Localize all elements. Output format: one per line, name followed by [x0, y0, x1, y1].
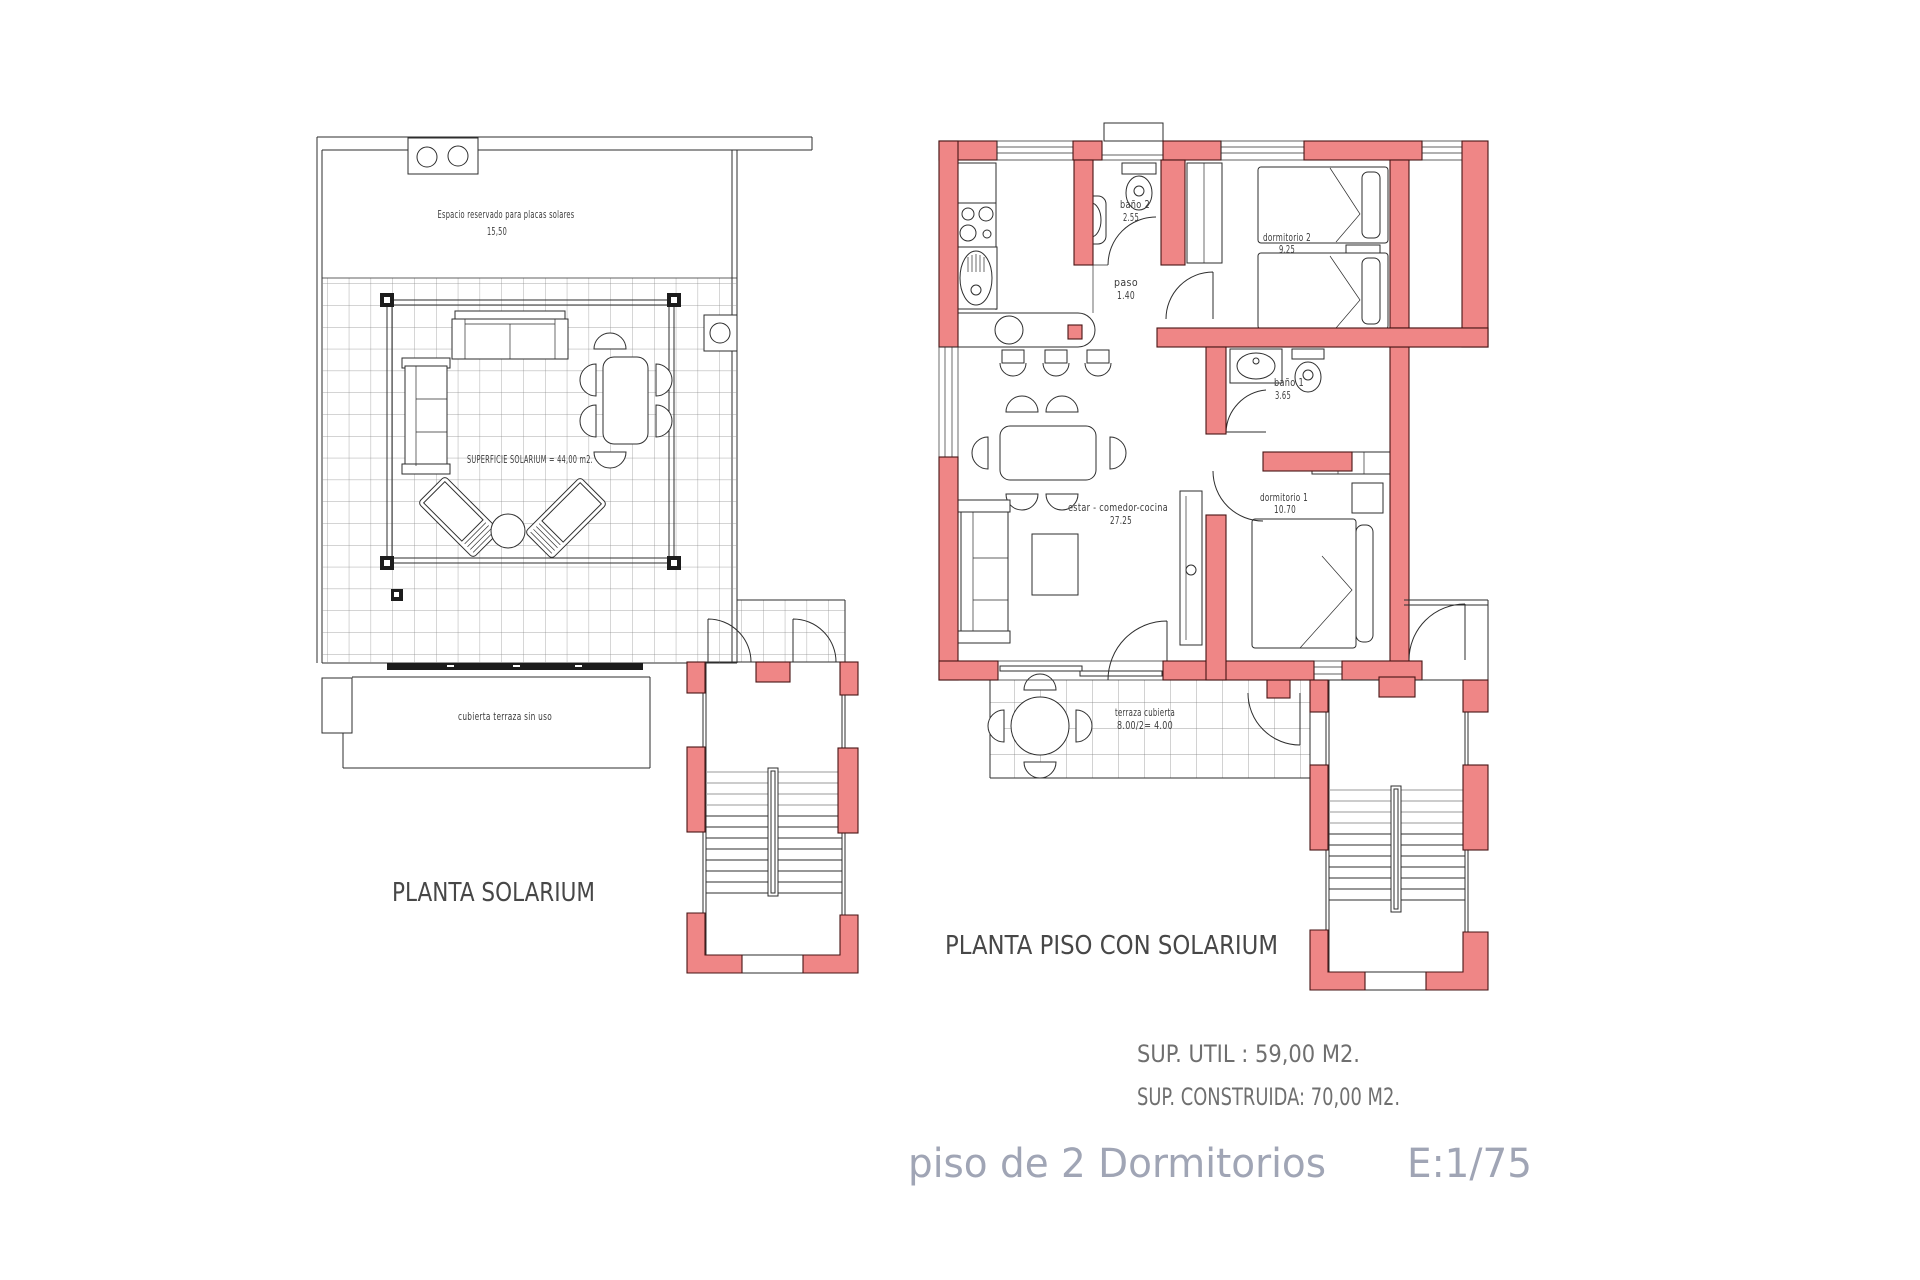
- bano2-label: baño 2: [1120, 199, 1150, 211]
- dorm2-area: 9.25: [1279, 244, 1295, 256]
- side-table: [491, 514, 525, 548]
- solarium-sofa-top: [452, 311, 568, 359]
- dorm1-label: dormitorio 1: [1260, 492, 1308, 504]
- solarium-sofa-left: [402, 358, 450, 474]
- window: [1221, 141, 1304, 160]
- kitchen-sink: [957, 247, 997, 309]
- solar-panels-area: 15,50: [487, 226, 507, 238]
- solarium-surface-label: SUPERFICIE SOLARIUM = 44,00 m2.: [467, 454, 593, 466]
- unused-terrace-label: cubierta terraza sin uso: [458, 711, 552, 723]
- solar-panels-label: Espacio reservado para placas solares: [438, 209, 575, 221]
- bedroom1-door-arc: [1213, 471, 1263, 521]
- walkway-tile-floor: [737, 600, 845, 662]
- tv-unit: [1180, 491, 1202, 645]
- bedroom1-wall-top: [1263, 452, 1352, 471]
- drawing-scale: E:1/75: [1407, 1141, 1532, 1187]
- window: [1314, 661, 1342, 680]
- bano1-area: 3.65: [1275, 390, 1291, 402]
- counter-pier: [1068, 325, 1082, 339]
- wall-unit: [704, 315, 737, 351]
- terraza-area: 8.00/2= 4.00: [1117, 720, 1173, 732]
- piso-plan-title: PLANTA PISO CON SOLARIUM: [945, 931, 1278, 961]
- sliding-door: [998, 661, 1163, 680]
- stair-handrail: [1391, 786, 1401, 912]
- bar-stools: [1000, 350, 1111, 376]
- paso-door-arc: [1166, 272, 1213, 319]
- window: [1422, 141, 1462, 160]
- estar-area: 27.25: [1110, 515, 1132, 527]
- dorm1-area: 10.70: [1274, 504, 1296, 516]
- paso-label: paso: [1114, 277, 1138, 289]
- solarium-plan-title: PLANTA SOLARIUM: [392, 878, 595, 908]
- drawing-caption: piso de 2 Dormitorios: [908, 1141, 1326, 1187]
- terrace: terraza cubierta 8.00/2= 4.00: [988, 674, 1310, 778]
- kitchen-cabinet: [958, 163, 996, 203]
- paso-hall: paso 1.40: [1114, 272, 1213, 319]
- terrace-table: [1011, 697, 1069, 755]
- bano2-area: 2.55: [1123, 212, 1139, 224]
- window: [997, 141, 1073, 160]
- bathroom1: baño 1 3.65: [1226, 349, 1324, 432]
- bedroom1: dormitorio 1 10.70: [1213, 452, 1390, 648]
- terraza-label: terraza cubierta: [1115, 707, 1175, 719]
- coffee-table: [1032, 534, 1078, 595]
- wardrobe: [1187, 163, 1222, 263]
- bathroom2-wall-left: [1074, 160, 1093, 265]
- bedroom2: dormitorio 2 9.25: [1187, 163, 1388, 329]
- bedroom1-wall-left: [1206, 515, 1226, 680]
- nightstand: [1352, 483, 1383, 513]
- dining-set: [972, 396, 1126, 510]
- entry-door-leaf: [1104, 123, 1163, 141]
- window: [939, 347, 958, 457]
- roof-vent: [408, 138, 478, 174]
- floorplan-drawing: Espacio reservado para placas solares 15…: [0, 0, 1920, 1280]
- bathroom2-door-arc: [1108, 217, 1156, 265]
- bed-single-2: [1258, 253, 1388, 329]
- bedroom2-wall-bottom: [1157, 328, 1488, 347]
- bed-double: [1252, 519, 1373, 648]
- living-room: estar - comedor-cocina 27.25: [958, 396, 1202, 680]
- built-surface-text: SUP. CONSTRUIDA: 70,00 M2.: [1137, 1083, 1400, 1111]
- useful-surface-text: SUP. UTIL : 59,00 M2.: [1137, 1040, 1360, 1068]
- paso-area: 1.40: [1117, 290, 1135, 302]
- bathroom1-door-arc: [1226, 390, 1266, 432]
- stairwell-left: [687, 619, 858, 973]
- blueprint-page: Espacio reservado para placas solares 15…: [0, 0, 1920, 1280]
- dorm2-label: dormitorio 2: [1263, 232, 1311, 244]
- stair-handrail: [768, 768, 778, 896]
- bathroom2-wall-right: [1161, 160, 1185, 265]
- estar-label: estar - comedor-cocina: [1068, 502, 1168, 514]
- bano1-label: baño 1: [1274, 377, 1304, 389]
- bathroom1-wall-left: [1206, 347, 1226, 434]
- unused-terrace: cubierta terraza sin uso: [322, 677, 650, 768]
- sofa: [958, 500, 1010, 643]
- kitchen-peninsula: [958, 313, 1111, 376]
- stove: [958, 203, 996, 247]
